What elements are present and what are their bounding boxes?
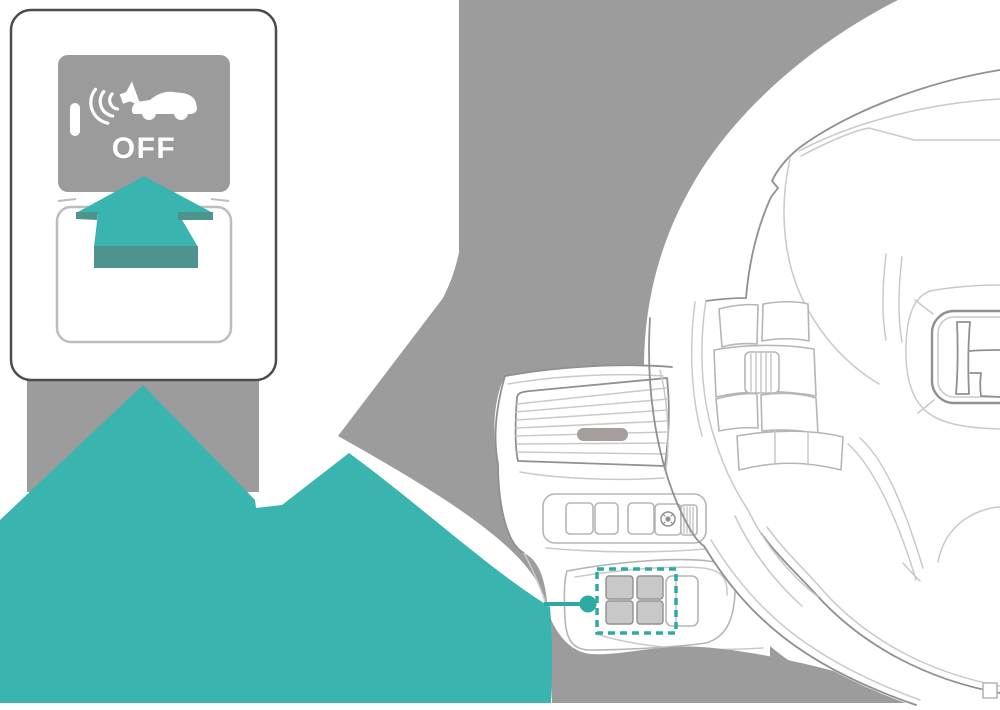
panel-button-top-left xyxy=(606,576,633,599)
panel-button-bottom-left xyxy=(606,601,633,624)
avas-off-button: OFF xyxy=(58,55,230,192)
arrow-right-wing-shade xyxy=(178,212,213,220)
button-callout: OFF xyxy=(11,10,276,380)
spoke-button-4 xyxy=(761,393,818,434)
vent-control-tab xyxy=(577,428,628,441)
thumbwheel-ribs-upper xyxy=(681,505,697,535)
panel-wide-button xyxy=(666,576,698,626)
connector-dot xyxy=(580,596,597,613)
upper-panel-button-2 xyxy=(595,503,618,534)
avas-button-location-diagram: OFF xyxy=(0,0,1000,710)
avas-off-button-face xyxy=(58,55,230,192)
indicator-lamp-bar xyxy=(70,103,80,136)
panel-button-top-right xyxy=(637,576,663,599)
spoke-button-1 xyxy=(719,305,758,347)
arrow-bottom-shade xyxy=(94,246,198,268)
arrow-left-wing-shade xyxy=(76,212,98,220)
upper-button-panel xyxy=(543,494,706,552)
panel-button-bottom-right xyxy=(637,601,663,624)
spoke-thumbwheel xyxy=(745,352,779,393)
upper-panel-button-3 xyxy=(628,503,654,534)
spoke-button-2 xyxy=(762,302,809,341)
spoke-button-3 xyxy=(716,394,758,431)
off-label: OFF xyxy=(112,132,177,165)
manual-diagram-page: OFF xyxy=(0,0,1000,710)
console-switch xyxy=(983,683,997,698)
upper-panel-button-1 xyxy=(566,503,593,534)
